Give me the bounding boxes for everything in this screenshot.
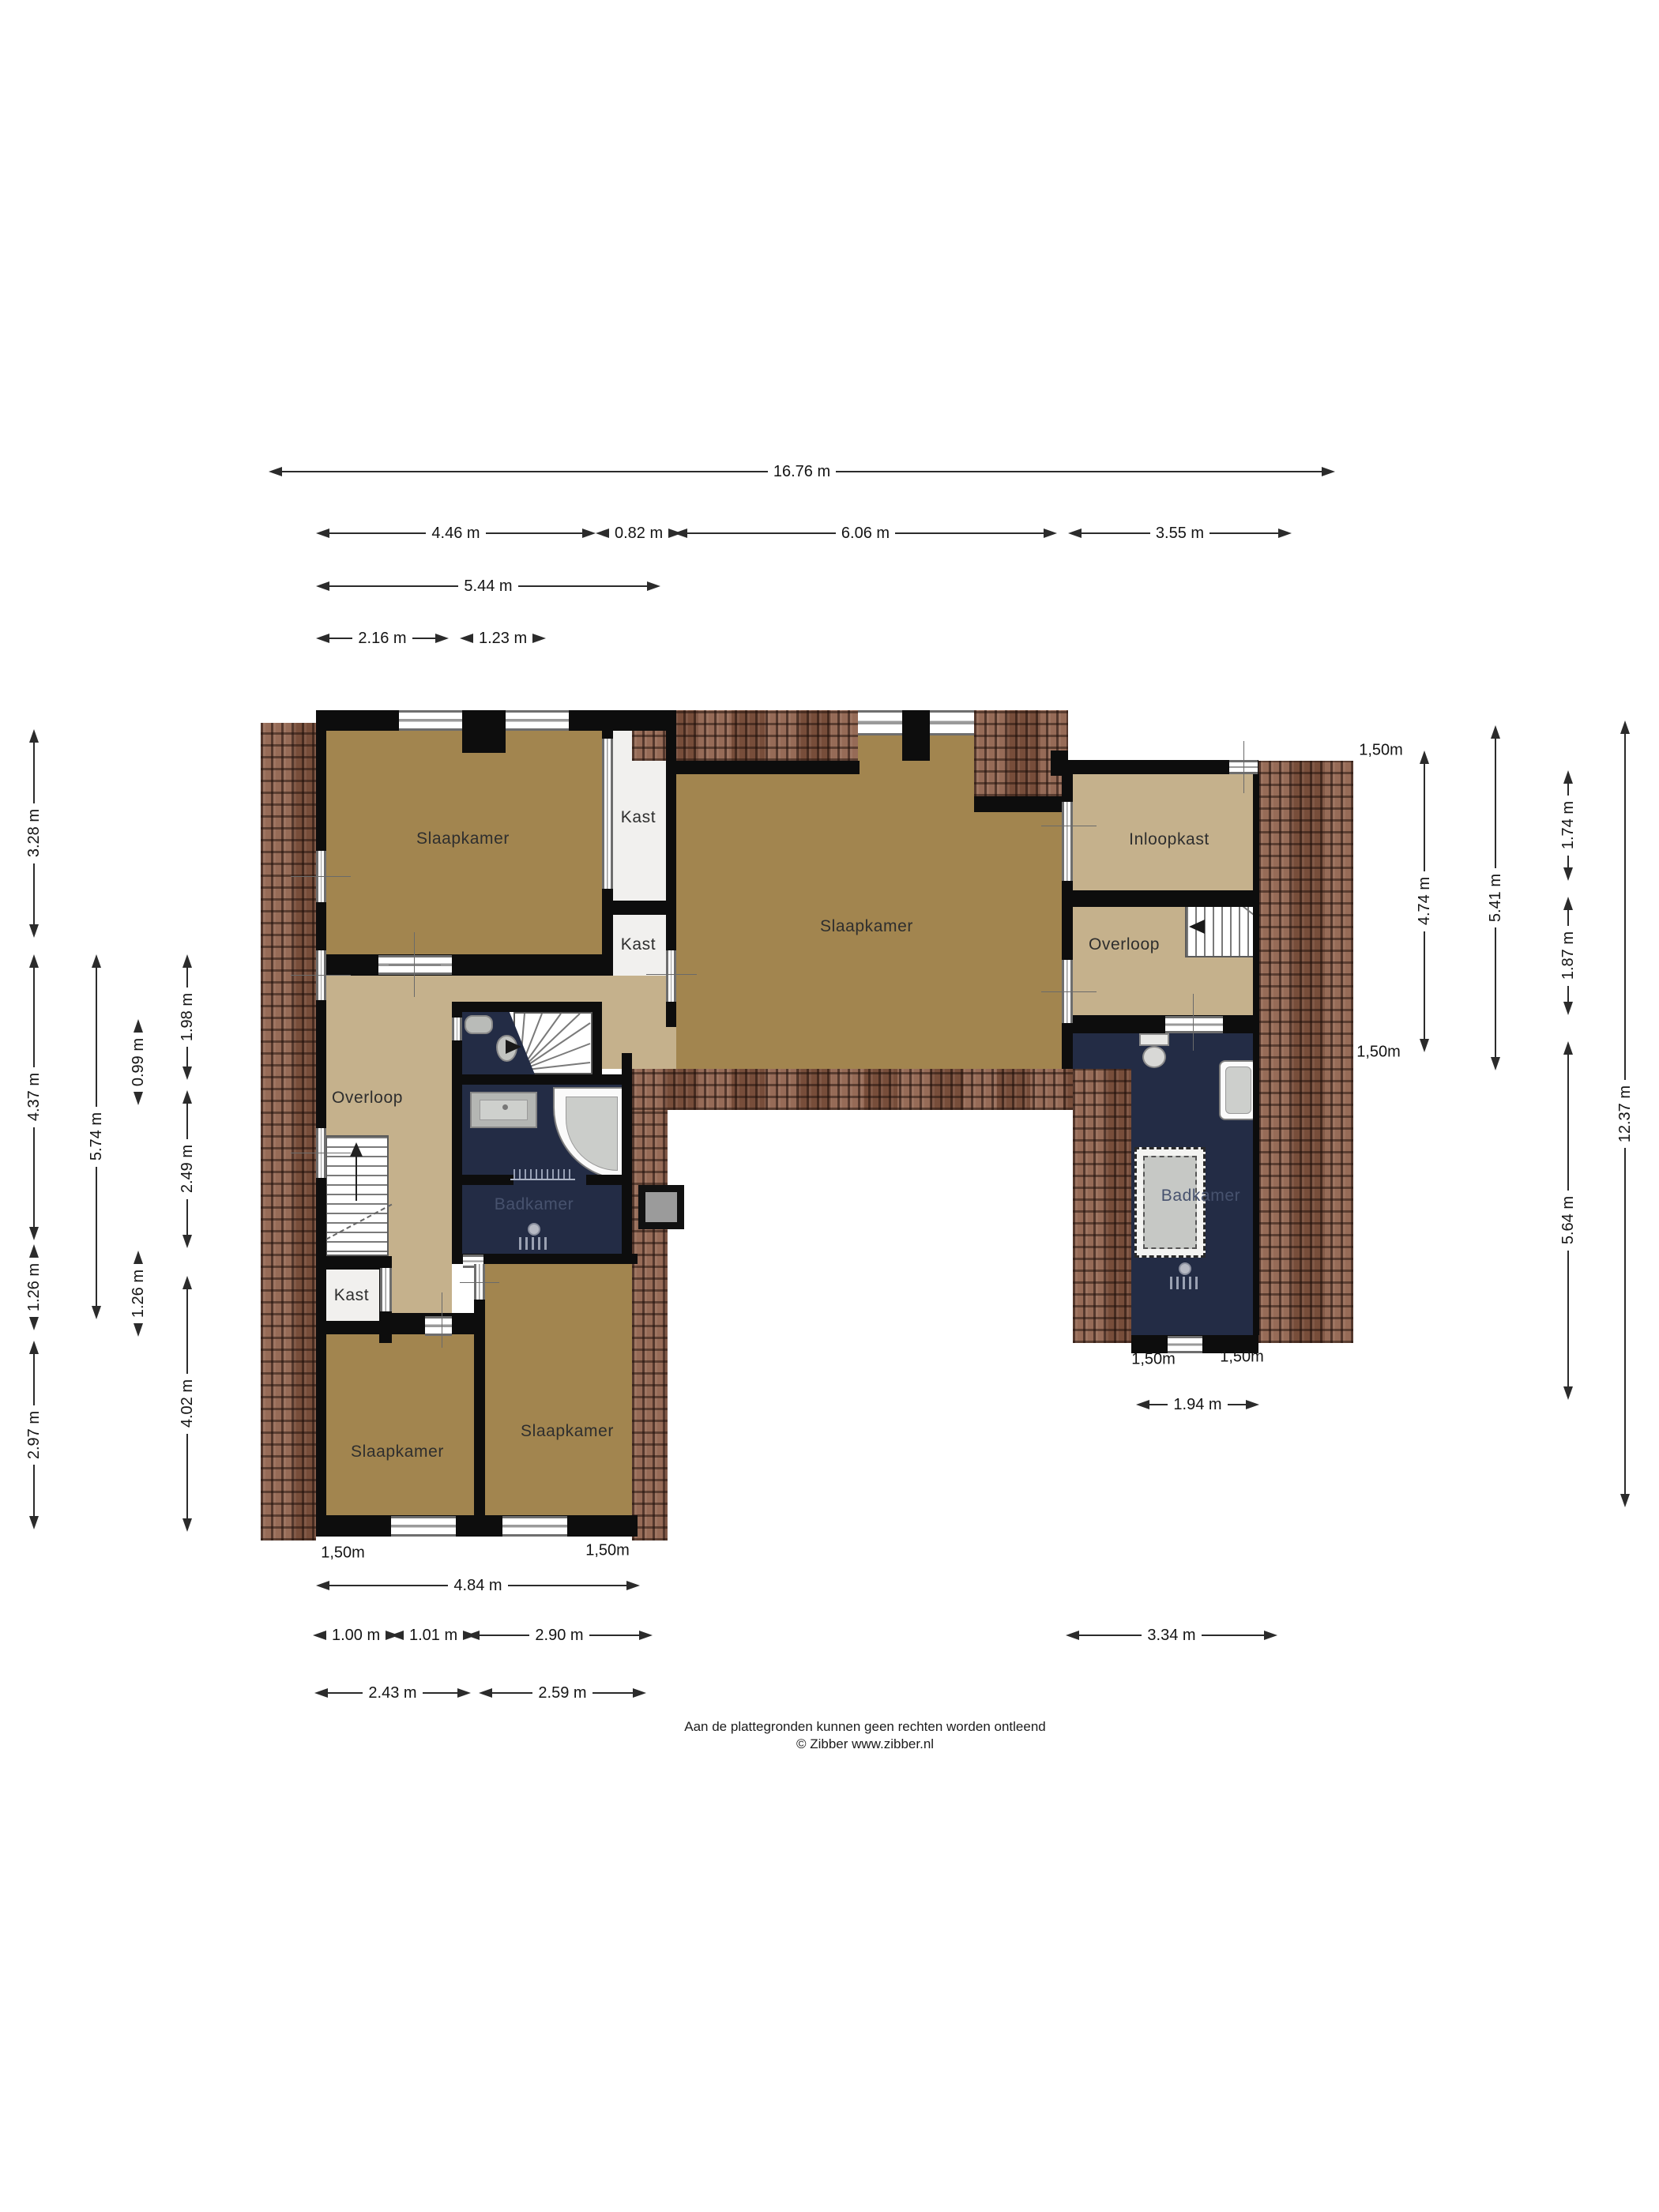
dim-top-a: 4.46 m bbox=[316, 524, 596, 543]
dim-bottom-a: 4.84 m bbox=[316, 1576, 640, 1595]
clearance-label-bottom-right: 1,50m bbox=[585, 1542, 630, 1560]
room-label-bathroom-central: Badkamer bbox=[495, 1195, 574, 1214]
stairs-left-stem bbox=[355, 1155, 357, 1201]
dormer-window bbox=[638, 1185, 684, 1229]
dim-label: 1.74 m bbox=[1559, 796, 1578, 855]
room-label-bathroom-right: Badkamer bbox=[1161, 1187, 1241, 1206]
ref-tick bbox=[389, 965, 441, 965]
dim-bottom-g: 2.59 m bbox=[479, 1683, 646, 1702]
dim-bottom-b: 1.00 m bbox=[313, 1626, 381, 1645]
shower-screen-rail bbox=[510, 1179, 575, 1180]
dim-label: 2.97 m bbox=[25, 1405, 43, 1465]
window bbox=[502, 1516, 567, 1537]
dim-label: 2.16 m bbox=[352, 630, 412, 648]
wall-left-outer bbox=[316, 710, 326, 1537]
dim-right-f: 12.37 m bbox=[1616, 720, 1635, 1507]
clearance-label-top-right: 1,50m bbox=[1359, 742, 1403, 760]
wall-wcblock-right bbox=[592, 1012, 602, 1074]
dim-left-h: 1.98 m bbox=[178, 954, 197, 1080]
landing-left-floor-a bbox=[326, 976, 452, 1135]
window bbox=[1062, 802, 1073, 881]
dim-label: 3.55 m bbox=[1150, 525, 1209, 543]
room-label-closet-understairs: Kast bbox=[334, 1286, 369, 1305]
window bbox=[930, 710, 974, 735]
radiator-central-bars bbox=[519, 1237, 551, 1250]
window bbox=[666, 950, 676, 1002]
ref-tick bbox=[1041, 991, 1097, 992]
wall-rightwing-edge bbox=[1253, 774, 1259, 1335]
roof-band-right bbox=[1258, 761, 1353, 1343]
wall-closet3-bottom bbox=[326, 1321, 392, 1334]
dim-left-a: 3.28 m bbox=[24, 729, 43, 938]
dim-bottom-d: 2.90 m bbox=[466, 1626, 653, 1645]
wall-closet-divider bbox=[613, 901, 666, 915]
dim-right-a: 4.74 m bbox=[1415, 750, 1434, 1052]
wall-wcblock-bottom bbox=[452, 1074, 632, 1085]
dim-label: 1.00 m bbox=[326, 1627, 386, 1645]
shower-partition-left bbox=[462, 1175, 513, 1185]
ref-tick bbox=[291, 876, 351, 877]
dim-left-d: 2.97 m bbox=[24, 1341, 43, 1529]
dim-bottom-h: 1.94 m bbox=[1136, 1395, 1259, 1414]
wall-below-walkin bbox=[1068, 890, 1258, 907]
toilet-right-tank bbox=[1139, 1033, 1169, 1046]
dim-label: 1.26 m bbox=[25, 1258, 43, 1317]
wall-under-roof-b bbox=[974, 796, 1068, 812]
dim-label: 1.23 m bbox=[473, 630, 532, 648]
room-label-closet-lower: Kast bbox=[621, 935, 656, 954]
wall-pillar-topleft bbox=[462, 710, 506, 753]
dim-right-c: 1.74 m bbox=[1559, 770, 1578, 881]
ref-tick bbox=[1041, 826, 1097, 826]
wall-bedroom-divider bbox=[474, 1264, 485, 1515]
dim-left-i: 2.49 m bbox=[178, 1090, 197, 1248]
ref-tick bbox=[1193, 994, 1194, 1051]
bathtub-right bbox=[1219, 1060, 1258, 1120]
dim-label: 5.44 m bbox=[458, 577, 517, 596]
wall-closetcol-right bbox=[666, 710, 676, 950]
dim-top-total: 16.76 m bbox=[269, 462, 1335, 481]
window bbox=[452, 1018, 462, 1040]
dim-label: 2.59 m bbox=[532, 1684, 592, 1702]
window bbox=[399, 710, 462, 731]
room-label-bedroom-bottomright: Slaapkamer bbox=[521, 1422, 614, 1441]
room-bedroom-bottomleft-floor bbox=[326, 1334, 474, 1515]
dim-label: 3.34 m bbox=[1142, 1627, 1201, 1645]
clearance-label-bath-left: 1,50m bbox=[1131, 1351, 1176, 1369]
landing-left-floor-c bbox=[602, 976, 676, 1069]
window bbox=[391, 1516, 456, 1537]
dim-top-d: 3.55 m bbox=[1068, 524, 1292, 543]
wall-pillar-topcenter bbox=[902, 710, 930, 761]
dim-label: 1.94 m bbox=[1168, 1396, 1227, 1414]
dim-label: 3.28 m bbox=[25, 803, 43, 863]
dim-label: 2.43 m bbox=[363, 1684, 422, 1702]
ref-tick bbox=[460, 1282, 499, 1283]
dim-top-b: 0.82 m bbox=[596, 524, 674, 543]
clearance-label-bath-right: 1,50m bbox=[1220, 1349, 1264, 1367]
window bbox=[1165, 1016, 1223, 1033]
dim-label: 5.74 m bbox=[88, 1107, 106, 1166]
dim-right-e: 5.64 m bbox=[1559, 1041, 1578, 1400]
room-label-bedroom-main: Slaapkamer bbox=[820, 917, 913, 936]
toilet-right-bowl bbox=[1142, 1046, 1166, 1068]
wall-mid-left bbox=[326, 954, 613, 976]
roof-band-rightwing-left bbox=[1073, 1069, 1131, 1343]
ref-tick bbox=[442, 1292, 442, 1348]
ref-tick bbox=[291, 975, 351, 976]
dim-label: 1.26 m bbox=[130, 1264, 148, 1323]
window bbox=[858, 710, 902, 735]
roof-band-middle-horizontal bbox=[632, 1069, 1073, 1110]
dim-label: 1.01 m bbox=[404, 1627, 463, 1645]
wall-bathc-right bbox=[622, 1053, 632, 1264]
dim-label: 0.82 m bbox=[609, 525, 668, 543]
radiator-right-bars bbox=[1170, 1277, 1202, 1289]
window bbox=[425, 1316, 452, 1336]
dim-label: 16.76 m bbox=[768, 463, 836, 481]
dim-left-c: 1.26 m bbox=[24, 1244, 43, 1327]
dim-right-b: 5.41 m bbox=[1486, 725, 1505, 1070]
dim-label: 4.74 m bbox=[1416, 871, 1434, 931]
ref-tick bbox=[646, 974, 697, 975]
room-label-bedroom-topleft: Slaapkamer bbox=[416, 829, 510, 848]
dim-top-f: 2.16 m bbox=[316, 629, 449, 648]
dim-left-f: 0.99 m bbox=[129, 1019, 148, 1082]
dim-label: 2.90 m bbox=[529, 1627, 589, 1645]
shower-screen bbox=[513, 1169, 572, 1179]
landing-left-floor-b bbox=[452, 976, 602, 1002]
dim-label: 1.98 m bbox=[179, 987, 197, 1047]
clearance-label-mid-right: 1,50m bbox=[1356, 1044, 1401, 1062]
dim-left-j: 4.02 m bbox=[178, 1276, 197, 1532]
room-bedroom-bottomright-floor bbox=[484, 1264, 638, 1515]
dim-bottom-f: 2.43 m bbox=[314, 1683, 471, 1702]
radiator-central bbox=[528, 1223, 540, 1236]
dim-label: 0.99 m bbox=[130, 1033, 148, 1092]
clearance-label-bottom-left: 1,50m bbox=[321, 1544, 365, 1563]
room-label-bedroom-bottomleft: Slaapkamer bbox=[351, 1443, 444, 1461]
dim-left-g: 1.26 m bbox=[129, 1251, 148, 1330]
wall-bottom-left bbox=[316, 1515, 638, 1537]
dim-label: 1.87 m bbox=[1559, 926, 1578, 985]
stairs-winder-direction-icon bbox=[506, 1040, 521, 1054]
dim-right-d: 1.87 m bbox=[1559, 897, 1578, 1015]
room-label-closet-upper: Kast bbox=[621, 808, 656, 827]
dim-label: 2.49 m bbox=[179, 1139, 197, 1198]
roof-band-left bbox=[261, 723, 316, 1540]
room-label-walkin-closet: Inloopkast bbox=[1129, 830, 1209, 849]
dim-left-b: 4.37 m bbox=[24, 954, 43, 1240]
disclaimer-text: Aan de plattegronden kunnen geen rechten… bbox=[684, 1719, 1045, 1735]
dim-top-c: 6.06 m bbox=[674, 524, 1057, 543]
ref-tick bbox=[291, 1153, 351, 1153]
wall-rightwing-corner-step bbox=[1051, 750, 1068, 776]
dim-label: 12.37 m bbox=[1616, 1080, 1635, 1148]
ref-tick bbox=[1243, 741, 1244, 793]
radiator-right bbox=[1179, 1262, 1191, 1275]
window bbox=[380, 1268, 392, 1311]
stairs-left-up-icon bbox=[350, 1142, 363, 1157]
wall-bathc-left bbox=[452, 1085, 462, 1264]
dim-label: 6.06 m bbox=[836, 525, 895, 543]
wc-sink bbox=[465, 1015, 493, 1034]
wall-under-roof-a bbox=[666, 761, 860, 774]
dim-label: 4.84 m bbox=[448, 1577, 507, 1595]
roof-band-bottomleft-right bbox=[632, 1110, 668, 1540]
window bbox=[506, 710, 569, 731]
dim-label: 4.02 m bbox=[179, 1374, 197, 1433]
window bbox=[602, 739, 613, 889]
vanity-sink bbox=[470, 1092, 537, 1128]
wall-closetcol-left-top bbox=[602, 731, 613, 739]
dim-bottom-e: 3.34 m bbox=[1066, 1626, 1277, 1645]
shower-partition-right bbox=[586, 1175, 622, 1185]
wall-closetcol-right-lower bbox=[666, 1002, 676, 1027]
wall-wcblock-top bbox=[452, 1002, 602, 1012]
stairs-main-direction-icon bbox=[1189, 920, 1205, 934]
dim-label: 4.46 m bbox=[426, 525, 485, 543]
dim-bottom-c: 1.01 m bbox=[390, 1626, 458, 1645]
dim-label: 4.37 m bbox=[25, 1067, 43, 1127]
dim-label: 5.41 m bbox=[1487, 868, 1505, 927]
dim-left-e: 5.74 m bbox=[87, 954, 106, 1319]
copyright-text: © Zibber www.zibber.nl bbox=[796, 1736, 934, 1752]
floorplan-canvas: Slaapkamer Slaapkamer Slaapkamer Slaapka… bbox=[0, 0, 1659, 2212]
dim-label: 5.64 m bbox=[1559, 1191, 1578, 1250]
room-label-landing-right: Overloop bbox=[1089, 935, 1160, 954]
dim-top-g: 1.23 m bbox=[460, 629, 536, 648]
room-label-landing-left: Overloop bbox=[332, 1089, 403, 1108]
dim-top-e: 5.44 m bbox=[316, 577, 660, 596]
